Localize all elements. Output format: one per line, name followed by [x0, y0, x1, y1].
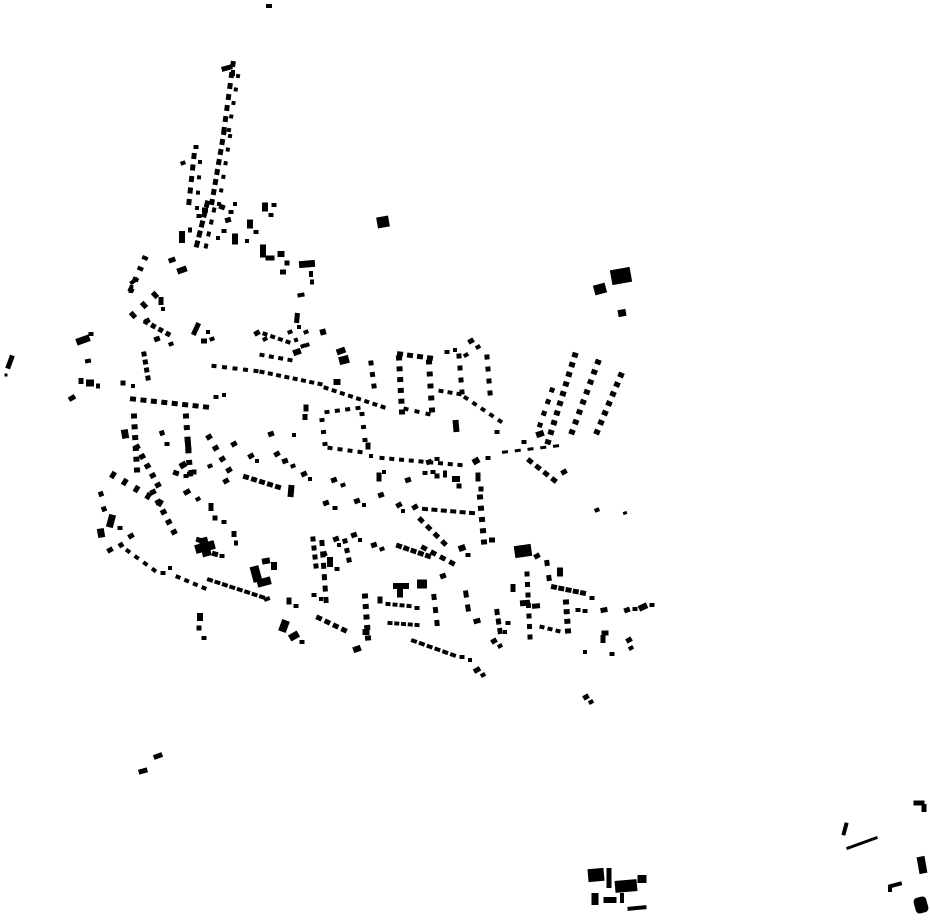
- building-footprint: [266, 4, 272, 8]
- building-footprint: [515, 449, 521, 453]
- building-footprint: [271, 562, 277, 570]
- building-footprint: [600, 607, 608, 613]
- building-footprint: [313, 563, 319, 569]
- building-footprint: [159, 297, 164, 305]
- building-footprint: [526, 613, 531, 618]
- building-footprint: [183, 488, 192, 496]
- building-footprint: [841, 822, 848, 836]
- building-footprint: [544, 560, 550, 567]
- building-footprint: [558, 585, 565, 591]
- building-footprint: [396, 366, 402, 371]
- building-footprint: [434, 647, 441, 653]
- building-footprint: [434, 620, 440, 627]
- building-footprint: [334, 379, 341, 385]
- building-footprint: [415, 606, 420, 610]
- building-footprint: [917, 856, 928, 874]
- building-footprint: [361, 425, 366, 430]
- building-footprint: [571, 352, 578, 359]
- building-footprint: [224, 217, 231, 223]
- building-footprint: [568, 429, 575, 436]
- building-footprint: [475, 344, 481, 350]
- building-footprint: [442, 649, 449, 655]
- building-footprint: [481, 539, 487, 545]
- building-footprint: [551, 584, 558, 590]
- building-footprint: [471, 401, 477, 407]
- building-footprint: [397, 589, 403, 598]
- building-footprint: [319, 540, 324, 546]
- map-canvas: [0, 0, 930, 924]
- building-footprint: [439, 554, 447, 561]
- building-footprint: [428, 460, 433, 464]
- building-footprint: [213, 516, 218, 521]
- building-footprint: [457, 484, 462, 489]
- building-footprint: [347, 448, 352, 453]
- building-footprint: [337, 447, 342, 452]
- building-footprint: [497, 418, 503, 424]
- building-footprint: [362, 438, 367, 443]
- building-footprint: [309, 271, 313, 277]
- building-footprint: [465, 604, 471, 612]
- building-footprint: [352, 645, 362, 653]
- building-footprint: [356, 396, 362, 401]
- building-footprint: [221, 129, 227, 136]
- building-footprint: [411, 503, 419, 510]
- building-footprint: [233, 202, 237, 206]
- building-footprint: [479, 517, 485, 523]
- building-footprint: [212, 207, 217, 213]
- building-footprint: [486, 456, 491, 460]
- building-footprint: [311, 545, 317, 551]
- building-footprint: [594, 507, 600, 512]
- building-footprint: [153, 752, 163, 760]
- building-footprint: [168, 566, 172, 570]
- building-footprint: [846, 836, 878, 850]
- building-footprint: [186, 460, 192, 465]
- building-footprint: [565, 628, 571, 633]
- building-footprint: [638, 602, 649, 611]
- building-footprint: [198, 160, 202, 164]
- building-footprint: [563, 599, 569, 604]
- building-footprint: [303, 329, 309, 334]
- building-footprint: [572, 419, 579, 426]
- building-footprint: [214, 580, 221, 586]
- building-footprint: [254, 230, 259, 234]
- building-footprint: [153, 336, 160, 343]
- building-footprint: [553, 410, 560, 417]
- building-footprint: [355, 406, 360, 411]
- building-footprint: [106, 514, 116, 528]
- building-footprint: [425, 524, 433, 532]
- building-footprint: [269, 354, 275, 359]
- building-footprint: [97, 528, 105, 538]
- building-footprint: [187, 471, 193, 476]
- building-footprint: [301, 378, 307, 383]
- building-footprint: [591, 369, 598, 376]
- building-footprint: [545, 398, 551, 404]
- building-footprint: [259, 353, 265, 358]
- building-footprint: [204, 243, 209, 249]
- building-footprint: [568, 361, 575, 368]
- building-footprint: [180, 160, 186, 165]
- building-footprint: [590, 596, 595, 600]
- building-footprint: [364, 625, 370, 630]
- building-footprint: [149, 472, 157, 479]
- building-footprint: [98, 491, 104, 497]
- building-footprint: [216, 236, 220, 240]
- building-footprint: [503, 630, 507, 634]
- building-footprint: [331, 388, 337, 393]
- building-footprint: [125, 548, 131, 554]
- building-footprint: [226, 147, 231, 152]
- building-footprint: [370, 542, 377, 549]
- building-footprint: [522, 440, 527, 444]
- building-footprint: [207, 577, 214, 583]
- building-footprint: [385, 602, 390, 606]
- building-footprint: [255, 459, 259, 463]
- building-footprint: [476, 473, 481, 482]
- building-footprint: [487, 390, 492, 395]
- building-footprint: [377, 492, 384, 499]
- building-footprint: [109, 471, 117, 480]
- building-footprint: [272, 203, 277, 207]
- building-footprint: [209, 219, 214, 225]
- building-footprint: [300, 640, 305, 644]
- building-footprint: [397, 351, 404, 357]
- building-footprint: [399, 603, 404, 607]
- building-footprint: [448, 462, 453, 466]
- building-footprint: [259, 594, 266, 600]
- building-footprint-map: [0, 0, 930, 924]
- building-footprint: [524, 571, 529, 576]
- building-footprint: [494, 609, 500, 616]
- building-footprint: [232, 531, 237, 537]
- building-footprint: [185, 448, 191, 453]
- building-footprint: [332, 622, 340, 629]
- building-footprint: [309, 380, 315, 385]
- building-footprint: [617, 309, 626, 317]
- building-footprint: [395, 501, 403, 508]
- building-footprint: [121, 478, 129, 487]
- building-footprint: [922, 804, 927, 812]
- building-footprint: [572, 588, 579, 594]
- building-footprint: [564, 609, 570, 614]
- building-footprint: [133, 485, 141, 494]
- building-footprint: [227, 128, 232, 133]
- building-footprint: [327, 446, 332, 451]
- building-footprint: [613, 381, 620, 388]
- building-footprint: [332, 536, 339, 543]
- building-footprint: [452, 420, 459, 432]
- building-footprint: [418, 641, 425, 647]
- building-footprint: [534, 464, 542, 472]
- building-footprint: [129, 311, 137, 320]
- building-footprint: [480, 528, 486, 534]
- building-footprint: [627, 905, 646, 911]
- building-footprint: [537, 422, 543, 428]
- building-footprint: [337, 543, 341, 547]
- building-footprint: [224, 105, 230, 112]
- building-footprint: [410, 548, 417, 555]
- building-footprint: [362, 593, 368, 598]
- building-footprint: [411, 638, 418, 644]
- building-footprint: [550, 419, 557, 426]
- building-footprint: [406, 604, 411, 608]
- building-footprint: [420, 544, 428, 551]
- building-footprint: [389, 457, 394, 461]
- building-footprint: [607, 868, 612, 888]
- building-footprint: [278, 251, 285, 257]
- building-footprint: [468, 658, 472, 662]
- building-footprint: [366, 443, 371, 450]
- building-footprint: [453, 348, 457, 352]
- building-footprint: [211, 551, 218, 557]
- building-footprint: [195, 496, 201, 502]
- building-footprint: [205, 433, 213, 440]
- building-footprint: [650, 603, 655, 607]
- building-footprint: [89, 332, 94, 336]
- building-footprint: [223, 161, 228, 166]
- building-footprint: [280, 270, 286, 275]
- building-footprint: [168, 341, 174, 346]
- building-footprint: [195, 206, 199, 210]
- building-footprint: [628, 645, 634, 651]
- building-footprint: [485, 366, 490, 371]
- building-footprint: [610, 267, 632, 285]
- building-footprint: [417, 550, 424, 557]
- building-footprint: [317, 382, 323, 387]
- building-footprint: [463, 352, 469, 358]
- building-footprint: [490, 637, 498, 644]
- building-footprint: [372, 402, 378, 407]
- building-footprint: [364, 399, 370, 404]
- building-footprint: [160, 508, 168, 515]
- building-footprint: [131, 424, 137, 429]
- building-footprint: [138, 767, 148, 774]
- building-footprint: [457, 463, 462, 467]
- building-footprint: [408, 622, 413, 626]
- building-footprint: [445, 350, 450, 354]
- building-footprint: [418, 459, 423, 463]
- building-footprint: [262, 203, 268, 212]
- building-footprint: [243, 367, 248, 372]
- building-footprint: [151, 567, 157, 573]
- building-footprint: [587, 868, 604, 882]
- building-footprint: [458, 544, 467, 552]
- building-footprint: [547, 429, 554, 436]
- building-footprint: [438, 389, 444, 394]
- building-footprint: [327, 557, 333, 567]
- building-footprint: [601, 635, 606, 643]
- building-footprint: [553, 444, 559, 448]
- building-footprint: [480, 672, 486, 678]
- building-footprint: [448, 559, 456, 566]
- building-footprint: [315, 614, 323, 621]
- building-footprint: [533, 552, 541, 559]
- building-footprint: [429, 407, 435, 412]
- building-footprint: [288, 630, 300, 641]
- building-footprint: [414, 623, 419, 627]
- building-footprint: [137, 266, 144, 272]
- building-footprint: [546, 575, 552, 582]
- building-footprint: [587, 379, 594, 386]
- building-footprint: [580, 590, 587, 596]
- building-footprint: [141, 351, 147, 357]
- building-footprint: [496, 618, 502, 625]
- building-footprint: [144, 462, 152, 469]
- building-footprint: [438, 461, 443, 465]
- building-footprint: [427, 371, 433, 376]
- building-footprint: [250, 476, 257, 483]
- building-footprint: [435, 457, 440, 461]
- building-footprint: [547, 626, 553, 631]
- building-footprint: [379, 546, 385, 551]
- building-footprint: [450, 509, 456, 513]
- building-footprint: [345, 407, 350, 412]
- building-footprint: [620, 893, 624, 903]
- building-footprint: [266, 481, 273, 488]
- building-footprint: [186, 199, 192, 206]
- building-footprint: [312, 593, 317, 597]
- building-footprint: [609, 391, 616, 398]
- building-footprint: [447, 390, 453, 395]
- building-footprint: [161, 307, 165, 311]
- building-footprint: [344, 548, 350, 554]
- building-footprint: [209, 503, 214, 511]
- building-footprint: [593, 429, 600, 436]
- building-footprint: [497, 628, 503, 635]
- building-footprint: [583, 609, 588, 613]
- building-footprint: [183, 413, 189, 418]
- building-footprint: [322, 500, 329, 507]
- building-footprint: [556, 400, 563, 407]
- building-footprint: [251, 592, 258, 598]
- building-footprint: [394, 621, 399, 625]
- building-footprint: [342, 538, 348, 544]
- building-footprint: [227, 83, 233, 90]
- building-footprint: [118, 542, 125, 549]
- building-footprint: [140, 397, 147, 403]
- building-footprint: [294, 313, 300, 323]
- building-footprint: [304, 405, 309, 412]
- building-footprint: [403, 545, 410, 552]
- building-footprint: [187, 187, 193, 194]
- building-footprint: [486, 378, 491, 383]
- building-footprint: [593, 283, 607, 296]
- building-footprint: [290, 463, 296, 468]
- building-footprint: [433, 607, 439, 614]
- building-footprint: [576, 409, 583, 416]
- building-footprint: [459, 389, 464, 394]
- building-footprint: [196, 230, 203, 238]
- building-footprint: [511, 584, 516, 592]
- building-footprint: [312, 554, 318, 560]
- building-footprint: [165, 331, 172, 338]
- building-footprint: [231, 101, 236, 106]
- building-footprint: [222, 365, 227, 370]
- building-footprint: [118, 526, 123, 530]
- building-footprint: [192, 403, 199, 409]
- building-footprint: [525, 582, 530, 587]
- building-footprint: [121, 429, 129, 439]
- building-footprint: [121, 381, 126, 386]
- building-footprint: [270, 334, 276, 339]
- building-footprint: [297, 292, 305, 297]
- building-footprint: [202, 636, 207, 640]
- building-footprint: [194, 145, 199, 149]
- building-footprint: [602, 631, 609, 636]
- building-footprint: [207, 463, 213, 468]
- building-footprint: [206, 330, 210, 334]
- building-footprint: [300, 470, 308, 477]
- building-footprint: [439, 573, 446, 580]
- building-footprint: [380, 404, 386, 409]
- building-footprint: [460, 655, 465, 659]
- building-footprint: [219, 139, 225, 146]
- building-footprint: [625, 636, 633, 643]
- building-footprint: [138, 453, 146, 460]
- building-footprint: [267, 371, 273, 376]
- building-footprint: [401, 509, 405, 513]
- building-footprint: [330, 477, 337, 484]
- building-footprint: [610, 652, 615, 656]
- building-footprint: [179, 231, 185, 243]
- building-footprint: [236, 74, 241, 79]
- building-footprint: [604, 897, 617, 903]
- building-footprint: [242, 474, 249, 481]
- building-footprint: [218, 455, 226, 462]
- building-footprint: [278, 356, 284, 361]
- building-footprint: [204, 200, 211, 208]
- building-footprint: [615, 879, 638, 893]
- building-footprint: [557, 568, 563, 577]
- building-footprint: [133, 554, 139, 560]
- building-footprint: [417, 580, 427, 589]
- building-footprint: [588, 699, 594, 705]
- building-footprint: [532, 603, 540, 609]
- building-footprint: [132, 435, 138, 440]
- building-footprint: [601, 410, 608, 417]
- building-footprint: [219, 188, 224, 193]
- building-footprint: [171, 401, 178, 407]
- building-footprint: [623, 511, 628, 515]
- building-footprint: [422, 507, 428, 511]
- building-footprint: [321, 563, 326, 569]
- building-footprint: [287, 329, 293, 334]
- building-footprint: [96, 384, 100, 389]
- building-footprint: [131, 413, 137, 418]
- building-footprint: [378, 597, 383, 604]
- building-footprint: [319, 597, 323, 601]
- building-footprint: [459, 510, 465, 514]
- building-footprint: [172, 470, 179, 477]
- building-footprint: [188, 228, 192, 233]
- building-footprint: [506, 621, 511, 625]
- building-footprint: [247, 452, 255, 459]
- building-footprint: [441, 508, 447, 512]
- building-footprint: [266, 256, 275, 261]
- building-footprint: [253, 369, 258, 374]
- building-footprint: [86, 380, 94, 387]
- building-footprint: [333, 506, 338, 510]
- building-footprint: [203, 404, 210, 410]
- building-footprint: [212, 444, 220, 451]
- building-footprint: [473, 666, 482, 674]
- building-footprint: [370, 372, 376, 378]
- building-footprint: [382, 470, 386, 474]
- building-footprint: [175, 574, 181, 580]
- building-footprint: [428, 395, 434, 400]
- building-footprint: [201, 339, 207, 344]
